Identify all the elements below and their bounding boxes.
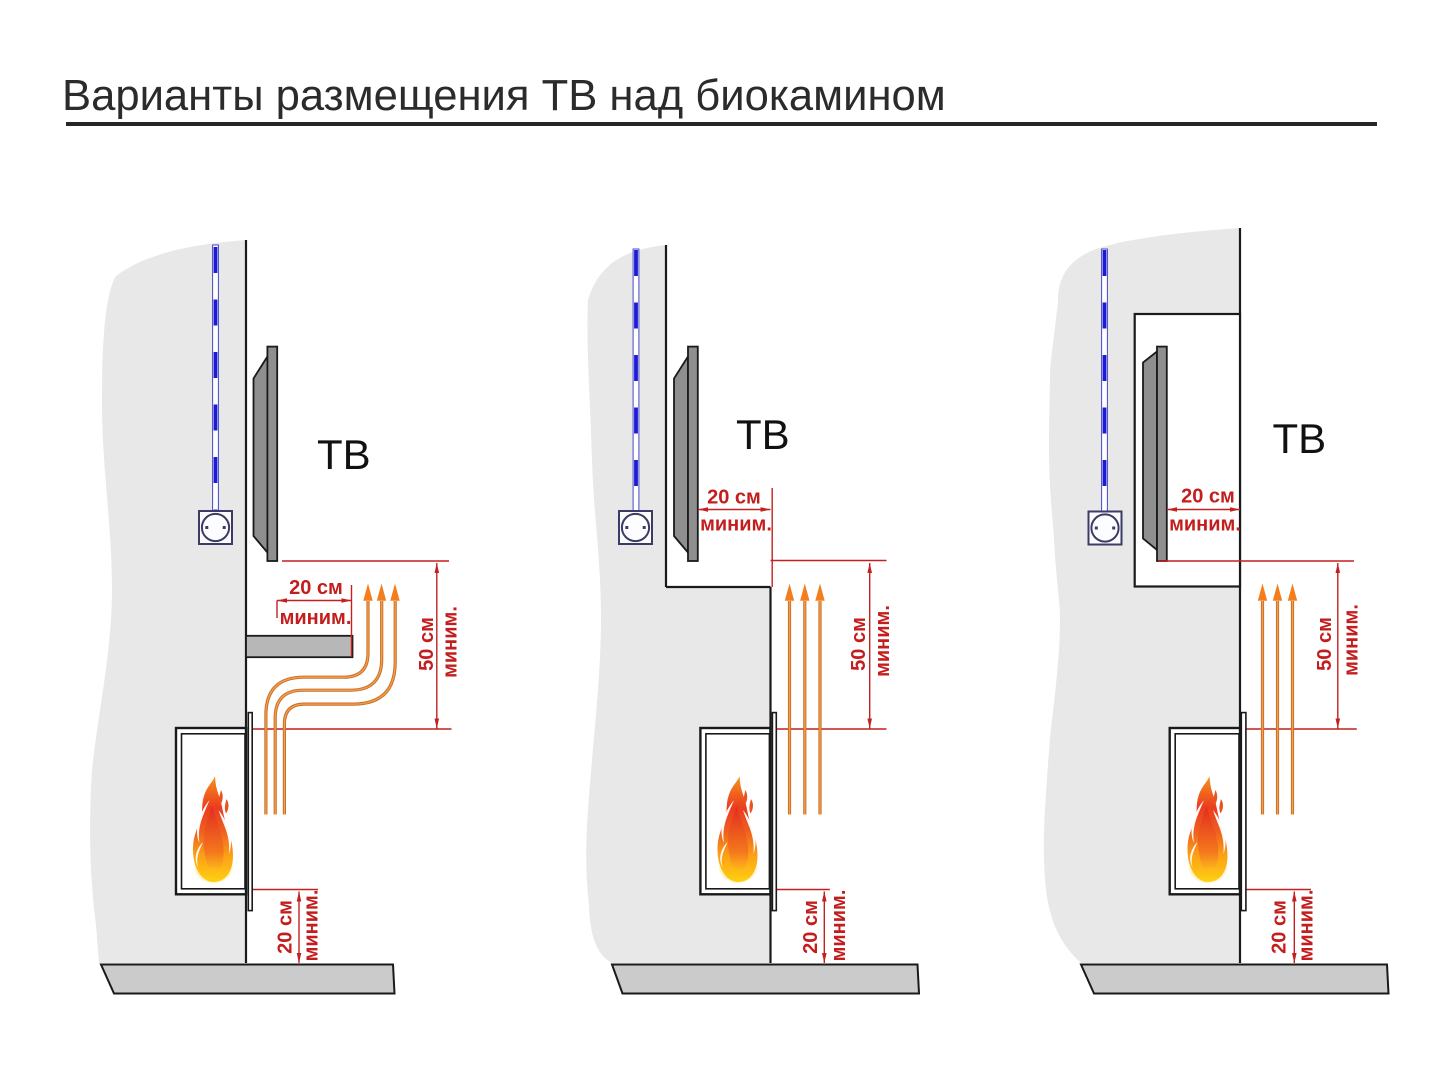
svg-text:миним.: миним.	[280, 607, 352, 629]
svg-text:20 см: 20 см	[800, 900, 822, 954]
svg-text:ТВ: ТВ	[317, 431, 371, 478]
svg-text:20 см: 20 см	[1181, 486, 1235, 508]
svg-text:50 см: 50 см	[1314, 617, 1336, 671]
svg-text:20 см: 20 см	[274, 900, 296, 954]
svg-text:миним.: миним.	[828, 890, 850, 962]
svg-text:миним.: миним.	[300, 890, 322, 962]
svg-text:миним.: миним.	[1341, 604, 1363, 676]
svg-text:20 см: 20 см	[289, 577, 343, 599]
svg-text:миним.: миним.	[700, 514, 772, 536]
svg-text:ТВ: ТВ	[736, 411, 790, 458]
svg-text:миним.: миним.	[440, 606, 462, 678]
svg-text:50 см: 50 см	[416, 617, 438, 671]
svg-text:миним.: миним.	[1296, 890, 1318, 962]
svg-text:20 см: 20 см	[1269, 900, 1291, 954]
svg-text:Варианты размещения ТВ над био: Варианты размещения ТВ над биокамином	[62, 72, 946, 120]
svg-text:миним.: миним.	[1169, 514, 1241, 536]
svg-text:миним.: миним.	[872, 605, 894, 677]
svg-text:ТВ: ТВ	[1273, 415, 1327, 462]
svg-text:20 см: 20 см	[707, 487, 761, 509]
svg-text:50 см: 50 см	[848, 617, 870, 671]
